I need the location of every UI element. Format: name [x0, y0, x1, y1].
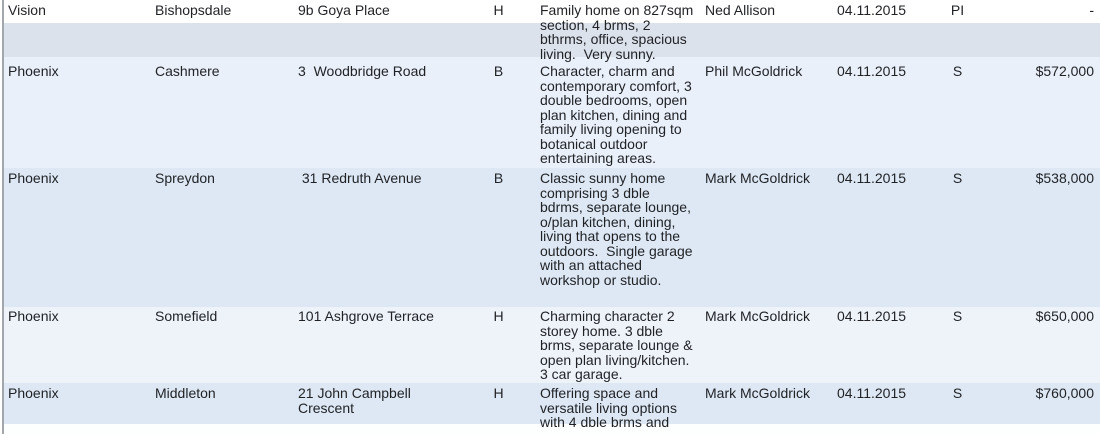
sales-table: Vision Bishopsdale 9b Goya Place H Famil… — [4, 0, 1100, 434]
address-cell: 9b Goya Place — [295, 3, 470, 18]
office-cell: Phoenix — [4, 309, 150, 324]
status-cell: S — [935, 171, 980, 186]
status-cell: PI — [935, 3, 980, 18]
suburb-cell: Spreydon — [150, 171, 295, 186]
price-cell: $650,000 — [980, 309, 1100, 324]
office-cell: Phoenix — [4, 386, 150, 401]
suburb-cell: Cashmere — [150, 64, 295, 79]
status-cell: S — [935, 386, 980, 401]
address-cell: 31 Redruth Avenue — [295, 171, 470, 186]
price-cell: $572,000 — [980, 64, 1100, 79]
agent-cell: Mark McGoldrick — [700, 309, 830, 324]
listing-row: Vision Bishopsdale 9b Goya Place H Famil… — [4, 0, 1100, 57]
listing-row: Phoenix Middleton 21 John Campbell Cresc… — [4, 383, 1100, 434]
listing-row: Phoenix Spreydon 31 Redruth Avenue B Cla… — [4, 168, 1100, 307]
status-cell: S — [935, 64, 980, 79]
agent-cell: Phil McGoldrick — [700, 64, 830, 79]
agent-cell: Mark McGoldrick — [700, 386, 830, 401]
type-cell: B — [470, 64, 527, 79]
agent-cell: Ned Allison — [700, 3, 830, 18]
suburb-cell: Somefield — [150, 309, 295, 324]
date-cell: 04.11.2015 — [830, 309, 935, 324]
office-cell: Phoenix — [4, 171, 150, 186]
description-cell: Character, charm and contemporary comfor… — [527, 64, 700, 166]
description-cell: Charming character 2 storey home. 3 dble… — [527, 309, 700, 382]
listing-row: Phoenix Somefield 101 Ashgrove Terrace H… — [4, 307, 1100, 383]
suburb-cell: Bishopsdale — [150, 3, 295, 18]
description-cell: Classic sunny home comprising 3 dble bdr… — [527, 171, 700, 287]
suburb-cell: Middleton — [150, 386, 295, 401]
price-cell: $538,000 — [980, 171, 1100, 186]
agent-cell: Mark McGoldrick — [700, 171, 830, 186]
date-cell: 04.11.2015 — [830, 386, 935, 401]
office-cell: Phoenix — [4, 64, 150, 79]
type-cell: H — [470, 309, 527, 324]
description-cell: Family home on 827sqm section, 4 brms, 2… — [527, 3, 700, 61]
type-cell: H — [470, 386, 527, 401]
date-cell: 04.11.2015 — [830, 64, 935, 79]
type-cell: B — [470, 171, 527, 186]
date-cell: 04.11.2015 — [830, 3, 935, 18]
address-cell: 21 John Campbell Crescent — [295, 386, 470, 415]
listing-row: Phoenix Cashmere 3 Woodbridge Road B Cha… — [4, 57, 1100, 168]
price-cell: $760,000 — [980, 386, 1100, 401]
office-cell: Vision — [4, 3, 150, 18]
table-left-border — [2, 0, 4, 434]
date-cell: 04.11.2015 — [830, 171, 935, 186]
address-cell: 3 Woodbridge Road — [295, 64, 470, 79]
sales-report-page: Vision Bishopsdale 9b Goya Place H Famil… — [0, 0, 1100, 434]
type-cell: H — [470, 3, 527, 18]
status-cell: S — [935, 309, 980, 324]
address-cell: 101 Ashgrove Terrace — [295, 309, 470, 324]
description-cell: Offering space and versatile living opti… — [527, 386, 700, 430]
price-cell: - — [980, 3, 1100, 18]
